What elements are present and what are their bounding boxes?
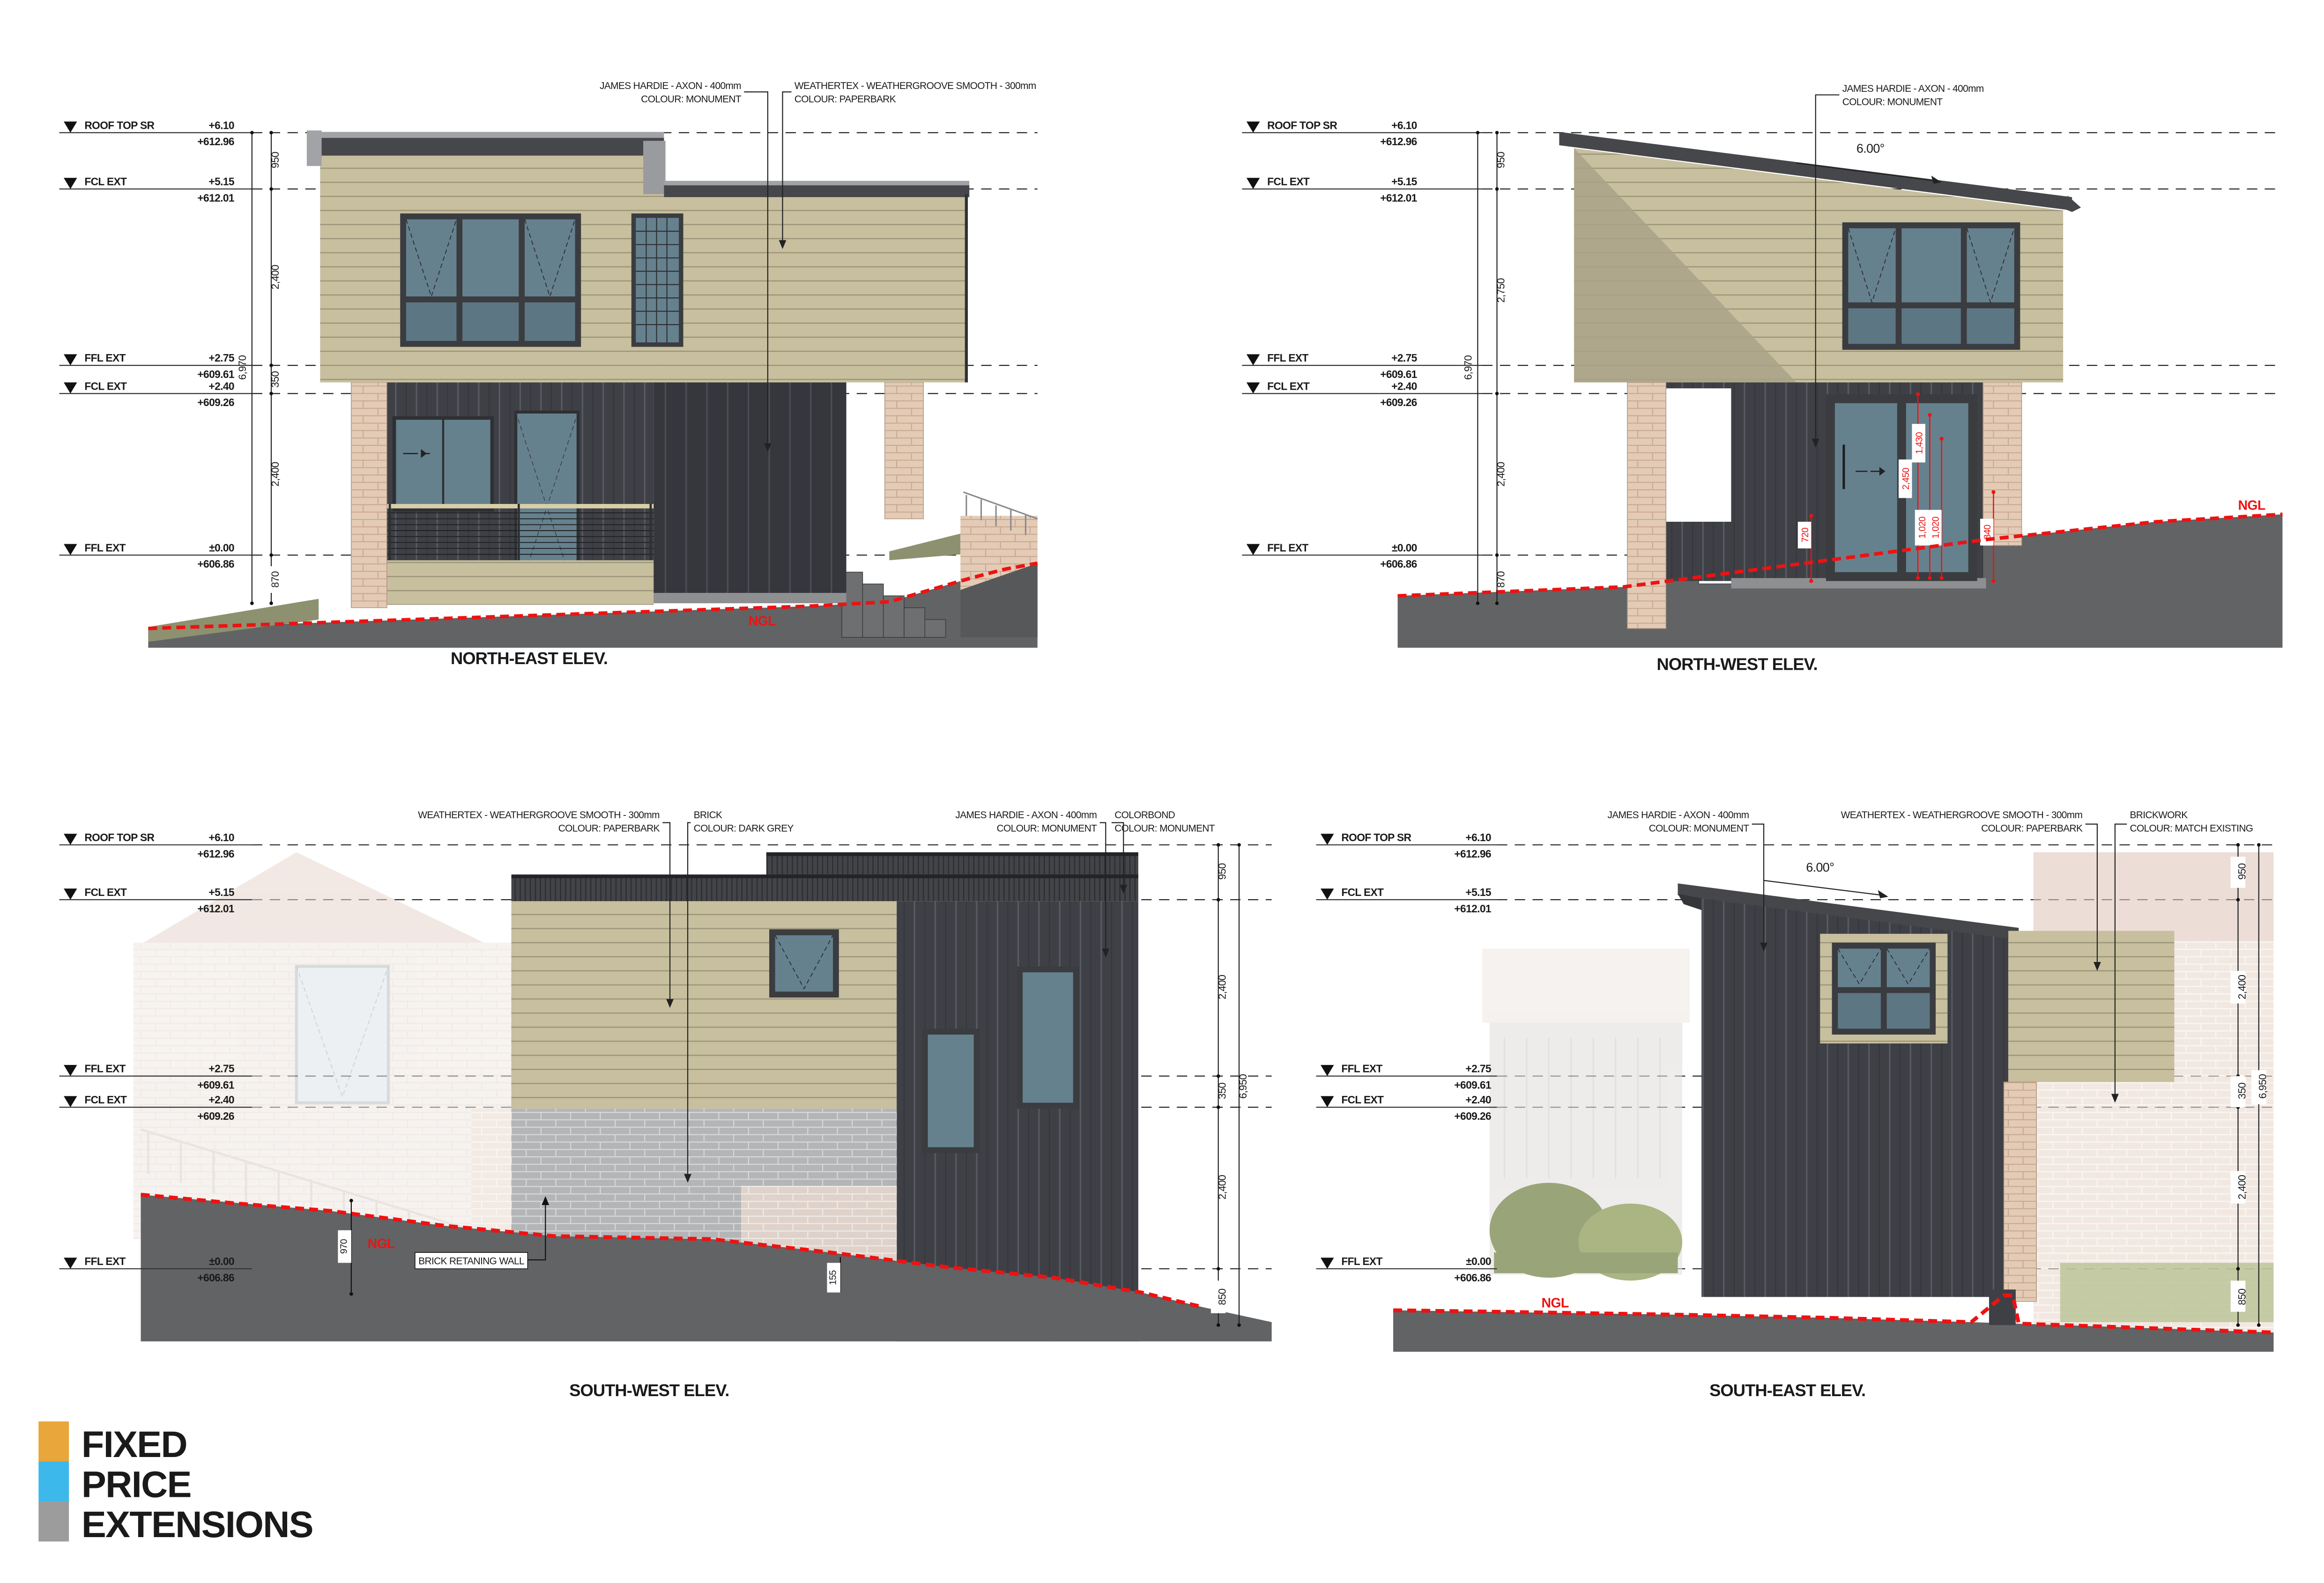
sw-dim-seg4: 850 bbox=[1217, 1288, 1228, 1305]
ne-level4-rl: +606.86 bbox=[197, 558, 234, 570]
sw-level4-rl: +606.86 bbox=[197, 1272, 234, 1284]
ne-level3-rl: +609.26 bbox=[197, 396, 234, 408]
sw-level0-rl: +612.96 bbox=[197, 848, 234, 860]
nw-level2-name: FFL EXT bbox=[1267, 352, 1308, 364]
sw-tall-window-left bbox=[922, 1028, 980, 1153]
se-dim-seg2: 350 bbox=[2236, 1082, 2248, 1099]
sw-level3-name: FCL EXT bbox=[84, 1094, 127, 1106]
se-dim-total: 6,950 bbox=[2257, 1074, 2269, 1099]
sw-elevation: NGL 970 155 BRICK RETANING WALL WEATHERT… bbox=[59, 810, 1272, 1400]
sw-callout4-line2: COLOUR: MONUMENT bbox=[1114, 823, 1215, 834]
nw-ngl-label: NGL bbox=[2238, 498, 2265, 513]
se-level2-name: FFL EXT bbox=[1341, 1063, 1382, 1075]
sw-callout2-line2: COLOUR: DARK GREY bbox=[694, 823, 794, 834]
se-callout2-line2: COLOUR: PAPERBARK bbox=[1981, 823, 2083, 834]
logo-blue-square bbox=[38, 1461, 69, 1501]
nw-level4-rl: +606.86 bbox=[1380, 558, 1417, 570]
ne-callout1-line2: COLOUR: MONUMENT bbox=[641, 94, 742, 104]
ne-level3-name: FCL EXT bbox=[84, 380, 127, 392]
se-ngl-label: NGL bbox=[1541, 1295, 1568, 1310]
nw-undercroft-opening bbox=[1666, 388, 1731, 522]
se-dim-seg4: 850 bbox=[2236, 1288, 2248, 1305]
se-dim-seg3: 2,400 bbox=[2236, 1175, 2248, 1200]
ne-parapet-left bbox=[307, 131, 322, 166]
nw-brick-pier-left bbox=[1627, 383, 1666, 629]
logo-word-extensions: EXTENSIONS bbox=[82, 1503, 313, 1545]
ne-dim-total: 6,970 bbox=[237, 355, 248, 380]
sw-level4-lvl: ±0.00 bbox=[209, 1255, 234, 1267]
sw-retaining-label: BRICK RETANING WALL bbox=[418, 1256, 524, 1267]
sw-callout2-line1: BRICK bbox=[694, 810, 722, 821]
logo-grey-square bbox=[38, 1502, 69, 1541]
nw-level2-rl: +609.61 bbox=[1380, 368, 1417, 380]
se-level1-name: FCL EXT bbox=[1341, 886, 1384, 898]
nw-reddim-1020b: 1,020 bbox=[1930, 517, 1941, 539]
sw-dim-155-label: 155 bbox=[828, 1270, 838, 1285]
elevation-sheet: NGL JAMES HARDIE - AXON - 400mm COLOUR: … bbox=[0, 0, 2324, 1583]
nw-level0-name: ROOF TOP SR bbox=[1267, 119, 1337, 131]
nw-dim-seg3: 870 bbox=[1495, 571, 1507, 588]
ne-level2-rl: +609.61 bbox=[197, 368, 234, 380]
sw-callout1-line1: WEATHERTEX - WEATHERGROOVE SMOOTH - 300m… bbox=[418, 810, 660, 821]
sw-level2-rl: +609.61 bbox=[197, 1079, 234, 1091]
se-beige-block bbox=[2008, 931, 2174, 1082]
ne-brick-pier-right bbox=[885, 383, 923, 519]
ne-level1-lvl: +5.15 bbox=[208, 176, 234, 188]
sw-level2-name: FFL EXT bbox=[84, 1063, 126, 1075]
se-level3-rl: +609.26 bbox=[1454, 1110, 1491, 1122]
ne-callout1-line1: JAMES HARDIE - AXON - 400mm bbox=[600, 81, 741, 91]
sw-dim-970-label: 970 bbox=[339, 1239, 349, 1254]
ne-balcony bbox=[387, 504, 654, 605]
ne-callout2-line1: WEATHERTEX - WEATHERGROOVE SMOOTH - 300m… bbox=[794, 81, 1036, 91]
se-brick-pier bbox=[2004, 1082, 2037, 1301]
ne-roof-cap-right bbox=[664, 181, 969, 185]
nw-level4-name: FFL EXT bbox=[1267, 541, 1308, 554]
se-dim-seg0: 950 bbox=[2236, 863, 2248, 880]
ne-level0-rl: +612.96 bbox=[197, 135, 234, 148]
ne-upper-wall-right bbox=[664, 194, 966, 383]
se-level1-rl: +612.01 bbox=[1454, 902, 1491, 915]
sw-roof-band-high bbox=[766, 855, 1138, 877]
se-level2-rl: +609.61 bbox=[1454, 1079, 1491, 1091]
se-roof-angle: 6.00° bbox=[1806, 860, 1834, 874]
nw-reddim-1020a: 1,020 bbox=[1917, 517, 1928, 539]
ne-dim-seg4: 870 bbox=[269, 571, 281, 588]
se-level3-name: FCL EXT bbox=[1341, 1094, 1384, 1106]
ne-level2-lvl: +2.75 bbox=[208, 352, 234, 364]
nw-reddim-720: 720 bbox=[1800, 527, 1811, 542]
sw-callout3-line1: JAMES HARDIE - AXON - 400mm bbox=[955, 810, 1097, 821]
se-level4-rl: +606.86 bbox=[1454, 1272, 1491, 1284]
ne-slab-edge bbox=[653, 593, 846, 603]
ne-upper-window bbox=[400, 214, 581, 347]
sw-callout1-line2: COLOUR: PAPERBARK bbox=[558, 823, 660, 834]
sw-level0-lvl: +6.10 bbox=[208, 831, 234, 843]
se-dim-seg1: 2,400 bbox=[2236, 975, 2248, 999]
nw-level1-lvl: +5.15 bbox=[1391, 176, 1417, 188]
ne-dim-seg2: 350 bbox=[269, 371, 281, 387]
se-level3-lvl: +2.40 bbox=[1465, 1094, 1491, 1106]
nw-reddim-2450: 2,450 bbox=[1901, 467, 1911, 489]
nw-level1-rl: +612.01 bbox=[1380, 192, 1417, 204]
se-level0-name: ROOF TOP SR bbox=[1341, 831, 1411, 843]
sw-level3-lvl: +2.40 bbox=[208, 1094, 234, 1106]
ne-grid-window bbox=[631, 214, 683, 347]
sw-tall-window-right bbox=[1017, 966, 1079, 1109]
se-callout1-line2: COLOUR: MONUMENT bbox=[1649, 823, 1750, 834]
se-level4-lvl: ±0.00 bbox=[1466, 1255, 1491, 1267]
sw-roof-cap bbox=[512, 874, 1138, 878]
nw-upper-window bbox=[1842, 222, 2020, 350]
se-level1-lvl: +5.15 bbox=[1465, 886, 1491, 898]
nw-callout1-line1: JAMES HARDIE - AXON - 400mm bbox=[1842, 83, 1984, 94]
ne-level1-name: FCL EXT bbox=[84, 176, 127, 188]
ne-dim-seg3: 2,400 bbox=[269, 462, 281, 487]
sw-dim-seg3: 2,400 bbox=[1217, 1175, 1228, 1200]
nw-dim-seg1: 2,750 bbox=[1495, 278, 1507, 303]
nw-dim-seg0: 950 bbox=[1495, 152, 1507, 168]
sw-level2-lvl: +2.75 bbox=[208, 1063, 234, 1075]
ne-level0-lvl: +6.10 bbox=[208, 119, 234, 131]
se-callout2-line1: WEATHERTEX - WEATHERGROOVE SMOOTH - 300m… bbox=[1841, 810, 2083, 821]
sw-dim-total: 6,950 bbox=[1237, 1074, 1249, 1099]
sw-dim-seg0: 950 bbox=[1217, 863, 1228, 880]
nw-level0-lvl: +6.10 bbox=[1391, 119, 1417, 131]
se-callout3-line2: COLOUR: MATCH EXISTING bbox=[2130, 823, 2253, 834]
sw-callout4-line1: COLORBOND bbox=[1114, 810, 1175, 821]
ne-level2-name: FFL EXT bbox=[84, 352, 126, 364]
nw-level0-rl: +612.96 bbox=[1380, 135, 1417, 148]
ne-lower-wall-centre bbox=[653, 383, 846, 599]
sw-callout3-line2: COLOUR: MONUMENT bbox=[997, 823, 1098, 834]
sw-roof-band bbox=[512, 878, 1138, 902]
nw-level4-lvl: ±0.00 bbox=[1392, 541, 1417, 554]
se-title: SOUTH-EAST ELEV. bbox=[1709, 1381, 1865, 1400]
se-callout3-line1: BRICKWORK bbox=[2130, 810, 2188, 821]
ne-callout2-line2: COLOUR: PAPERBARK bbox=[794, 94, 896, 104]
ne-ngl-label: NGL bbox=[749, 614, 776, 629]
sw-level1-rl: +612.01 bbox=[197, 902, 234, 915]
sw-level0-name: ROOF TOP SR bbox=[84, 831, 154, 843]
nw-level1-name: FCL EXT bbox=[1267, 176, 1310, 188]
sw-roof-cap-high bbox=[766, 852, 1138, 856]
ne-title: NORTH-EAST ELEV. bbox=[451, 649, 608, 668]
nw-level2-lvl: +2.75 bbox=[1391, 352, 1417, 364]
sw-upper-window bbox=[769, 929, 839, 998]
se-level2-lvl: +2.75 bbox=[1465, 1063, 1491, 1075]
nw-reddim-1430: 1,430 bbox=[1915, 432, 1925, 454]
ne-roof-band-left bbox=[317, 138, 664, 155]
se-window bbox=[1832, 943, 1936, 1035]
ne-brick-pier-left bbox=[351, 383, 387, 608]
sw-level1-name: FCL EXT bbox=[84, 886, 127, 898]
sw-dim-seg1: 2,400 bbox=[1217, 975, 1228, 999]
nw-level3-rl: +609.26 bbox=[1380, 396, 1417, 408]
ne-level1-rl: +612.01 bbox=[197, 192, 234, 204]
ne-roof-band-right bbox=[664, 185, 969, 197]
se-callout1-line1: JAMES HARDIE - AXON - 400mm bbox=[1608, 810, 1749, 821]
se-level0-lvl: +6.10 bbox=[1465, 831, 1491, 843]
ne-dim-seg1: 2,400 bbox=[269, 265, 281, 289]
nw-dim-seg2: 2,400 bbox=[1495, 462, 1507, 487]
sw-level3-rl: +609.26 bbox=[197, 1110, 234, 1122]
nw-dim-total: 6,970 bbox=[1463, 355, 1474, 380]
nw-level3-lvl: +2.40 bbox=[1391, 380, 1417, 392]
ne-parapet-cap bbox=[317, 132, 664, 138]
sw-ngl-label: NGL bbox=[368, 1236, 395, 1251]
logo-word-fixed: FIXED bbox=[82, 1423, 187, 1465]
sw-dim-seg2: 350 bbox=[1217, 1082, 1228, 1099]
nw-title: NORTH-WEST ELEV. bbox=[1657, 654, 1818, 673]
ne-level4-lvl: ±0.00 bbox=[209, 541, 234, 554]
logo-word-price: PRICE bbox=[82, 1463, 191, 1505]
se-level4-name: FFL EXT bbox=[1341, 1255, 1382, 1267]
ne-dim-seg0: 950 bbox=[269, 152, 281, 168]
logo-orange-square bbox=[38, 1421, 69, 1461]
nw-callout1-line2: COLOUR: MONUMENT bbox=[1842, 97, 1943, 108]
ne-level4-name: FFL EXT bbox=[84, 541, 126, 554]
se-level0-rl: +612.96 bbox=[1454, 848, 1491, 860]
sw-title: SOUTH-WEST ELEV. bbox=[569, 1381, 729, 1400]
ne-level3-lvl: +2.40 bbox=[208, 380, 234, 392]
nw-roof-angle: 6.00° bbox=[1856, 141, 1885, 155]
sw-level1-lvl: +5.15 bbox=[208, 886, 234, 898]
ne-level0-name: ROOF TOP SR bbox=[84, 119, 154, 131]
sw-level4-name: FFL EXT bbox=[84, 1255, 126, 1267]
nw-level3-name: FCL EXT bbox=[1267, 380, 1310, 392]
ne-roof-step bbox=[643, 141, 665, 194]
